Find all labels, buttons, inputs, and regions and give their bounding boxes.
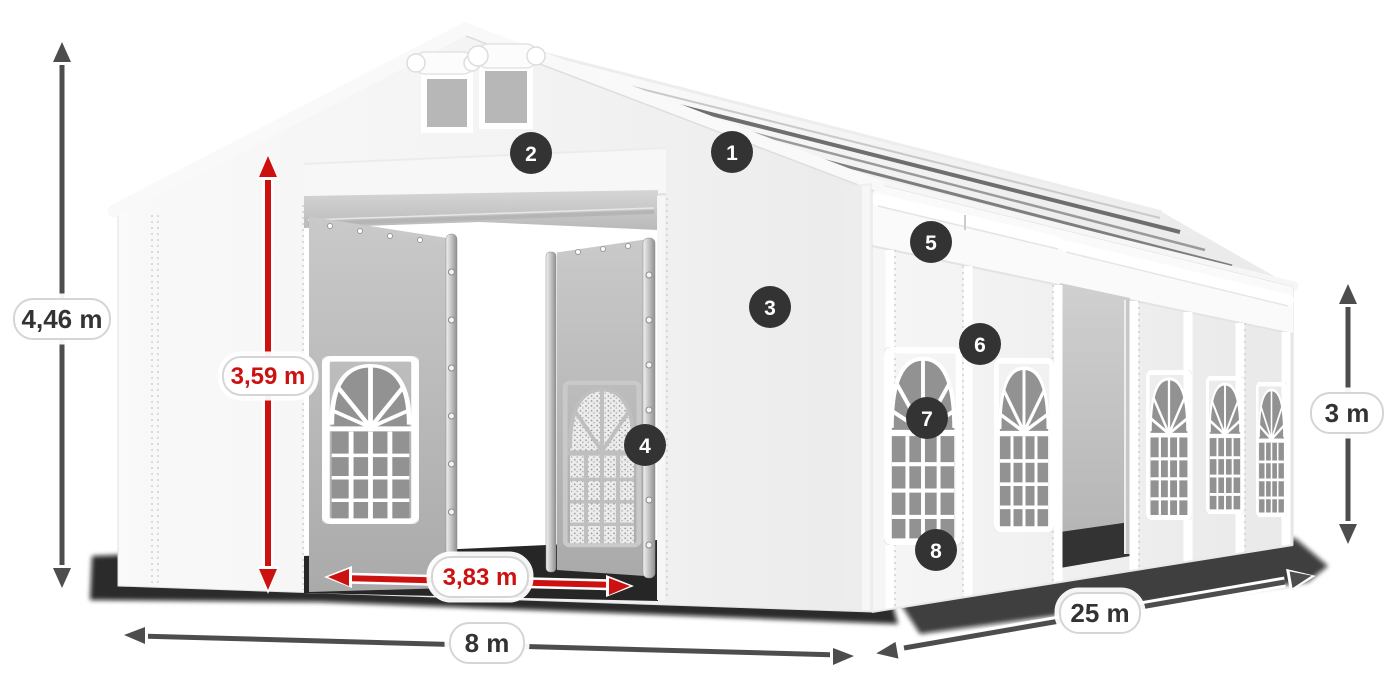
hotspot-7[interactable]: 7	[906, 397, 948, 439]
hotspot-2[interactable]: 2	[510, 132, 552, 174]
dimension-side-height: 3 m	[1309, 280, 1385, 548]
diagram-canvas: 4,46 m 3,59 m 3,83 m 8 m	[0, 0, 1400, 700]
inner-door-left	[309, 219, 457, 592]
front-width-label: 8 m	[465, 628, 510, 658]
entrance-width-label: 3,83 m	[443, 564, 518, 591]
hotspot-5[interactable]: 5	[910, 221, 952, 263]
side-entrance-opening	[1060, 283, 1130, 568]
side-height-label: 3 m	[1325, 398, 1370, 428]
hotspot-2-number: 2	[525, 143, 537, 166]
hotspot-8[interactable]: 8	[915, 529, 957, 571]
inner-door-right-window	[565, 383, 639, 545]
dimension-total-height: 4,46 m	[12, 38, 112, 592]
hotspot-6[interactable]: 6	[959, 323, 1001, 365]
inner-door-right	[546, 238, 655, 578]
vent-window-left	[424, 76, 470, 130]
hotspot-3[interactable]: 3	[749, 286, 791, 328]
door-pole	[446, 234, 457, 590]
hotspot-3-number: 3	[764, 297, 776, 320]
vent-window-right	[482, 68, 530, 126]
total-height-label: 4,46 m	[22, 304, 103, 334]
hotspot-5-number: 5	[925, 232, 937, 255]
hotspot-1[interactable]: 1	[711, 131, 753, 173]
hotspot-4[interactable]: 4	[624, 424, 666, 466]
door-pole	[546, 252, 556, 572]
hotspot-6-number: 6	[974, 334, 986, 357]
hotspot-7-number: 7	[921, 408, 933, 431]
entrance-height-label: 3,59 m	[231, 363, 306, 390]
hotspot-8-number: 8	[930, 540, 942, 563]
hotspot-1-number: 1	[726, 142, 738, 165]
hotspot-4-number: 4	[639, 435, 651, 458]
tent-dimension-diagram: 4,46 m 3,59 m 3,83 m 8 m	[0, 0, 1400, 700]
dimension-front-width: 8 m	[120, 621, 858, 668]
front-entrance-opening	[304, 190, 661, 601]
side-length-label: 25 m	[1070, 598, 1129, 628]
